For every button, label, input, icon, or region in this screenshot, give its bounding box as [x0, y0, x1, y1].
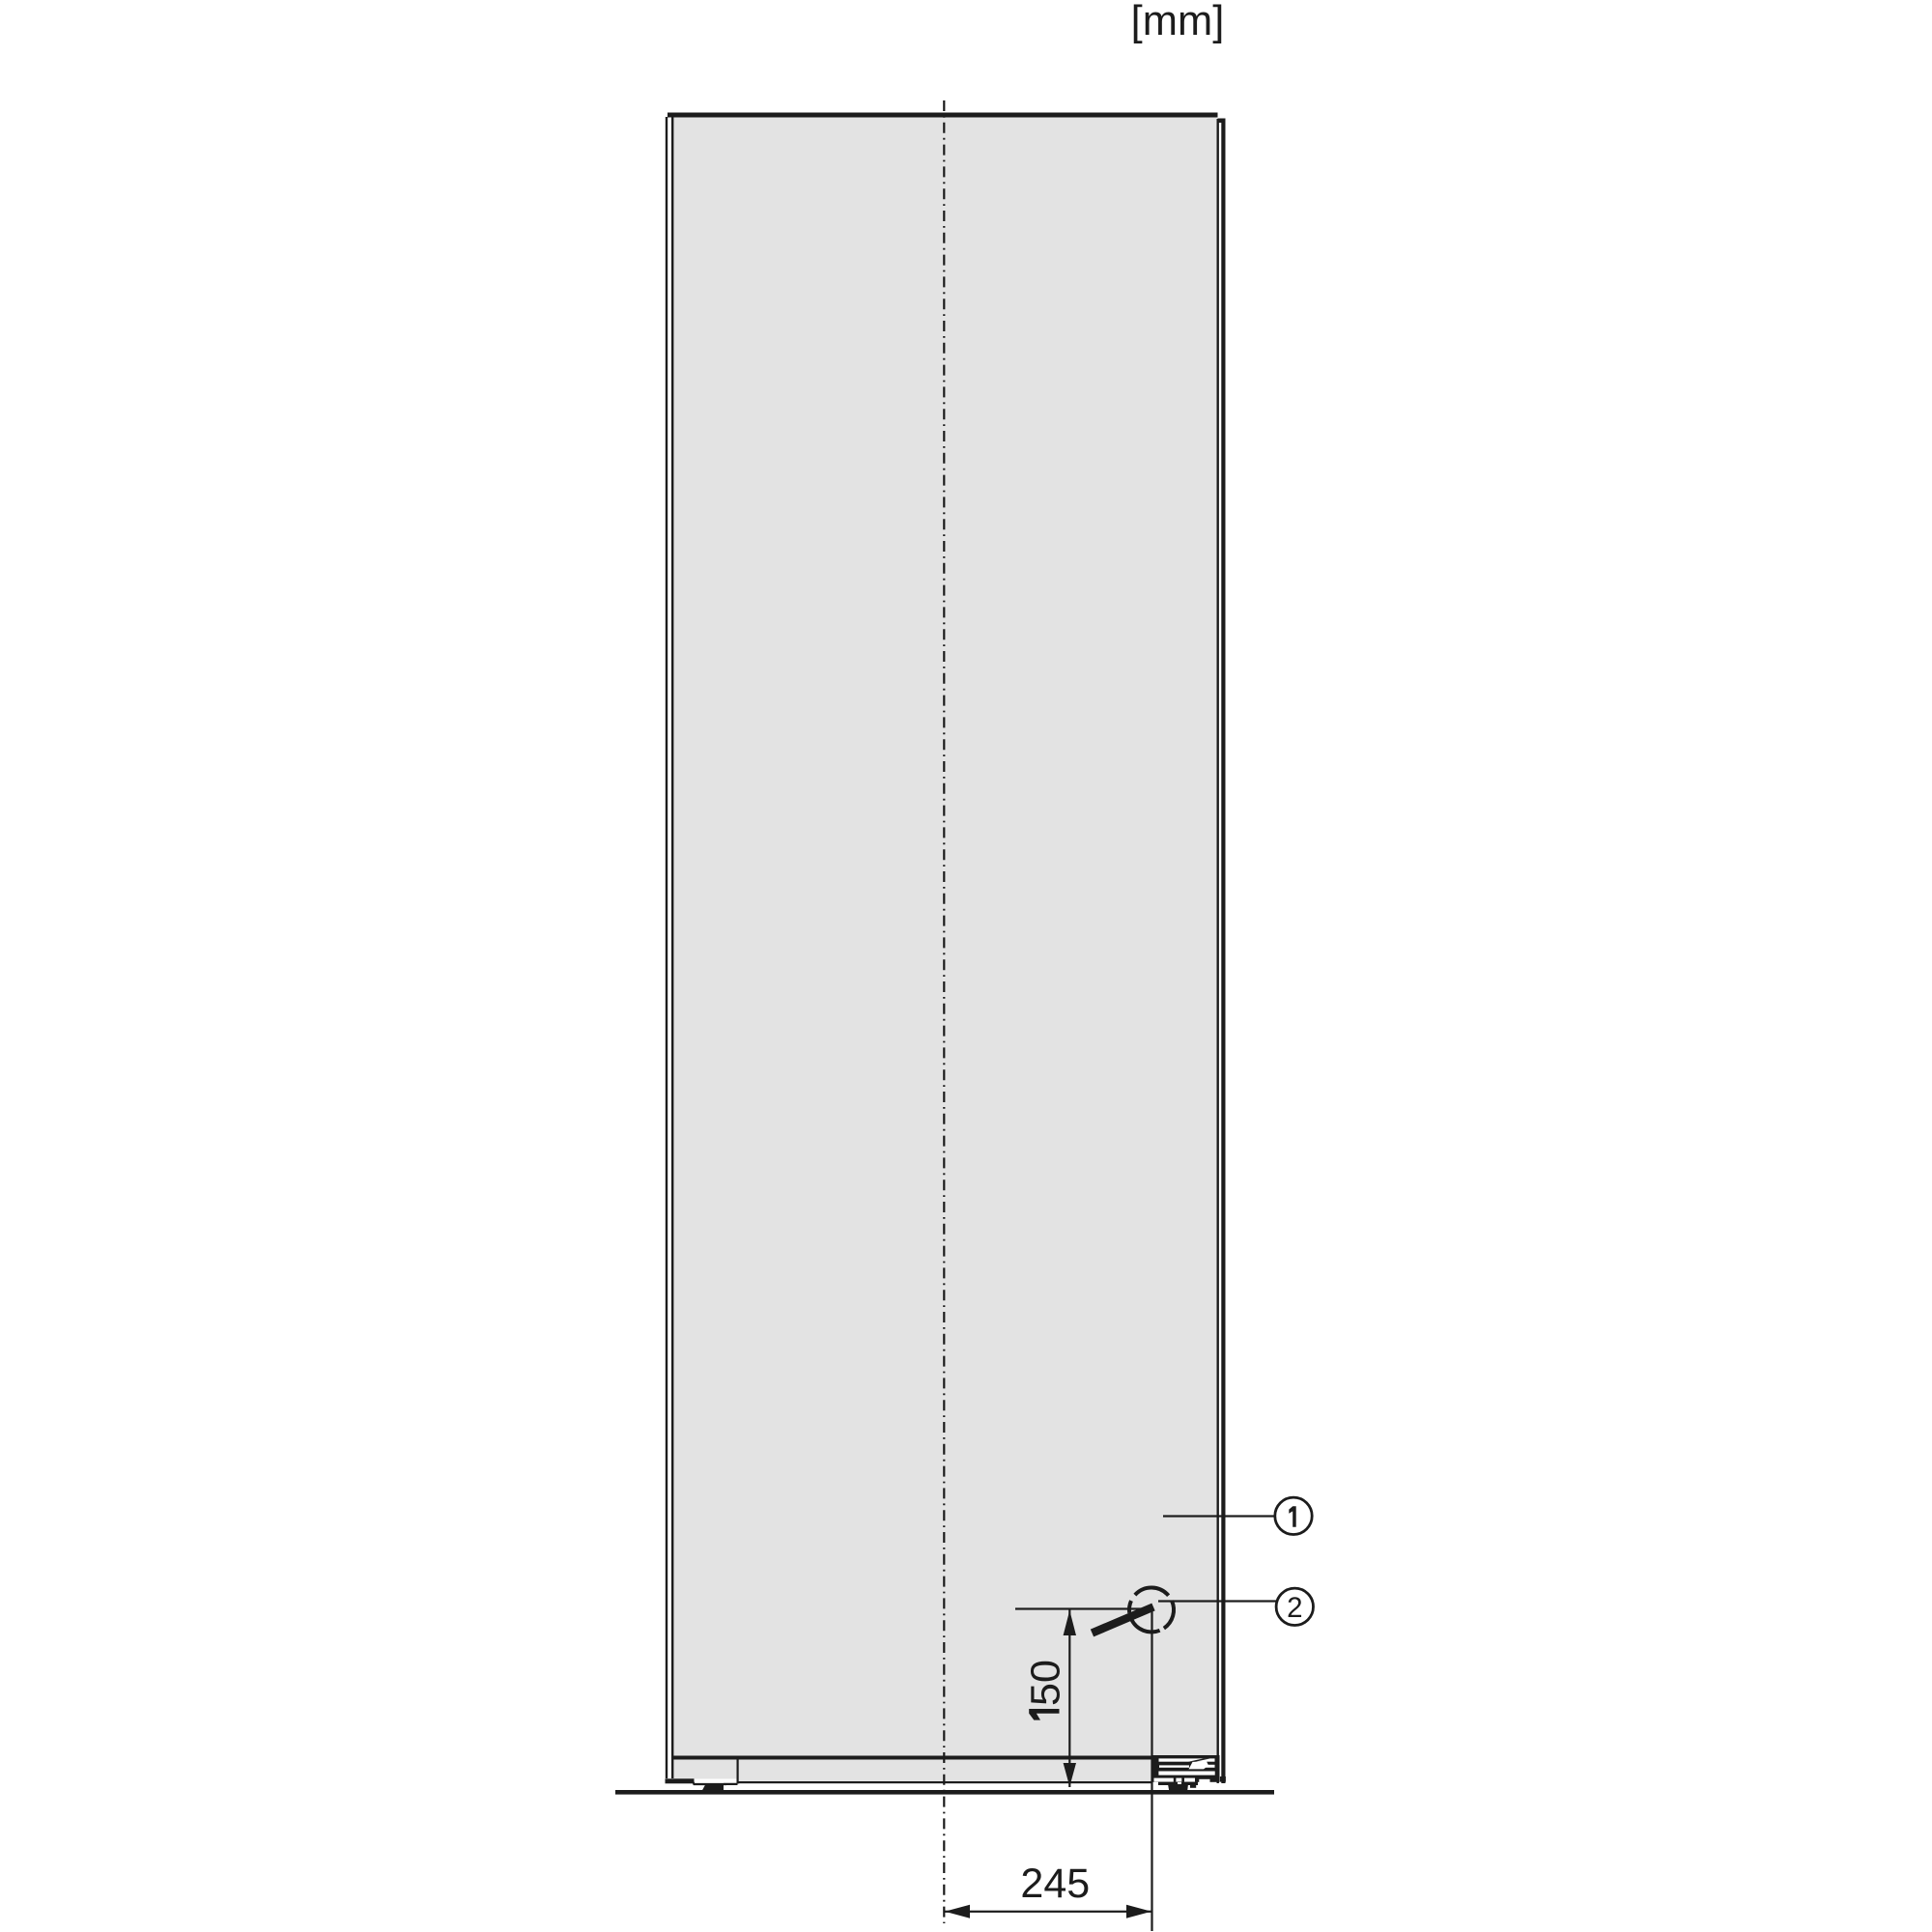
svg-text:2: 2: [1287, 1592, 1302, 1624]
svg-text:245: 245: [1020, 1861, 1090, 1907]
svg-text:[mm]: [mm]: [1131, 0, 1225, 44]
svg-text:50: 50: [1023, 1660, 1069, 1706]
